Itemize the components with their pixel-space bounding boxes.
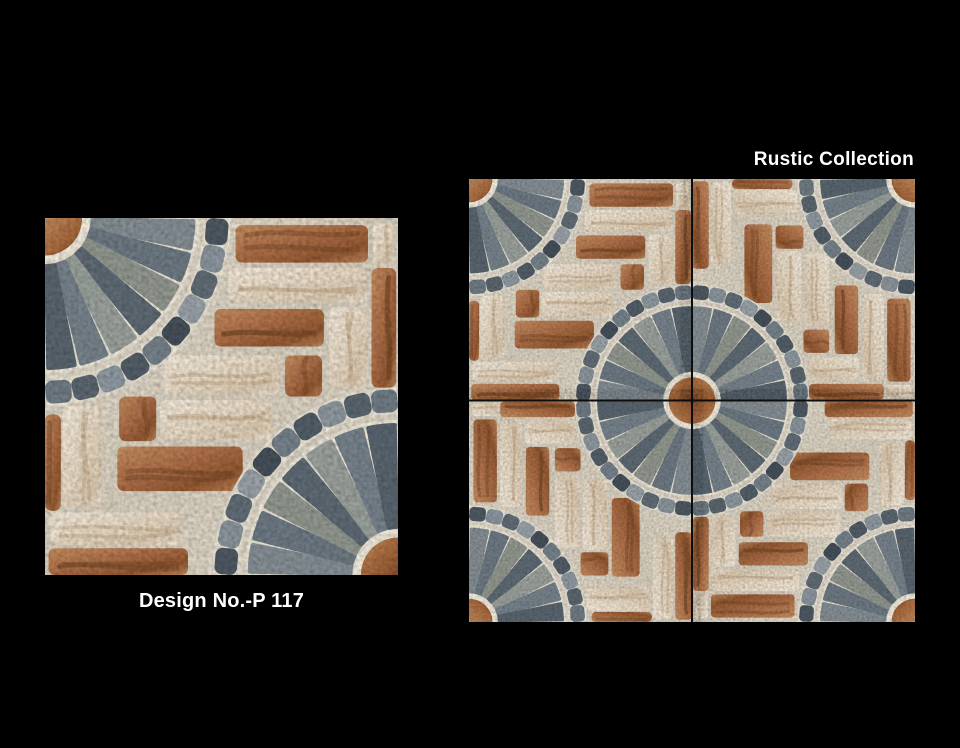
- single-tile-preview: [45, 218, 398, 575]
- design-number-label: Design No.-P 117: [45, 590, 398, 613]
- tile-pattern-single: [45, 218, 398, 575]
- collection-title: Rustic Collection: [754, 149, 914, 171]
- tile-grid-preview: [469, 179, 915, 622]
- catalog-page: Rustic Collection Design No.-P 117: [0, 0, 960, 748]
- tile-pattern-grid: [469, 179, 915, 622]
